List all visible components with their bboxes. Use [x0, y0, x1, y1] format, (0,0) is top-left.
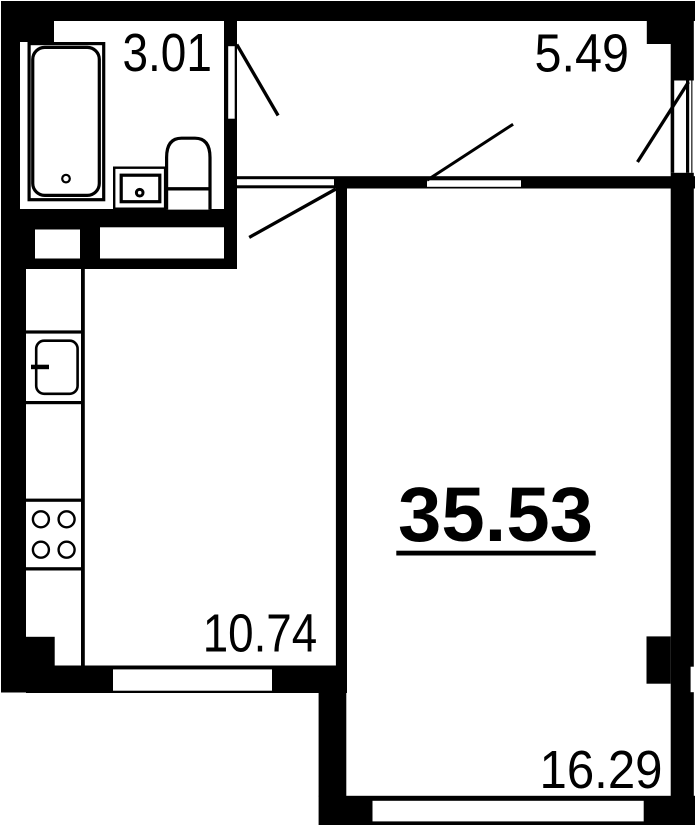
svg-text:35.53: 35.53: [398, 472, 593, 558]
svg-text:3.01: 3.01: [123, 23, 212, 83]
svg-text:5.49: 5.49: [535, 24, 630, 84]
svg-text:10.74: 10.74: [203, 604, 318, 664]
svg-text:16.29: 16.29: [540, 740, 663, 800]
